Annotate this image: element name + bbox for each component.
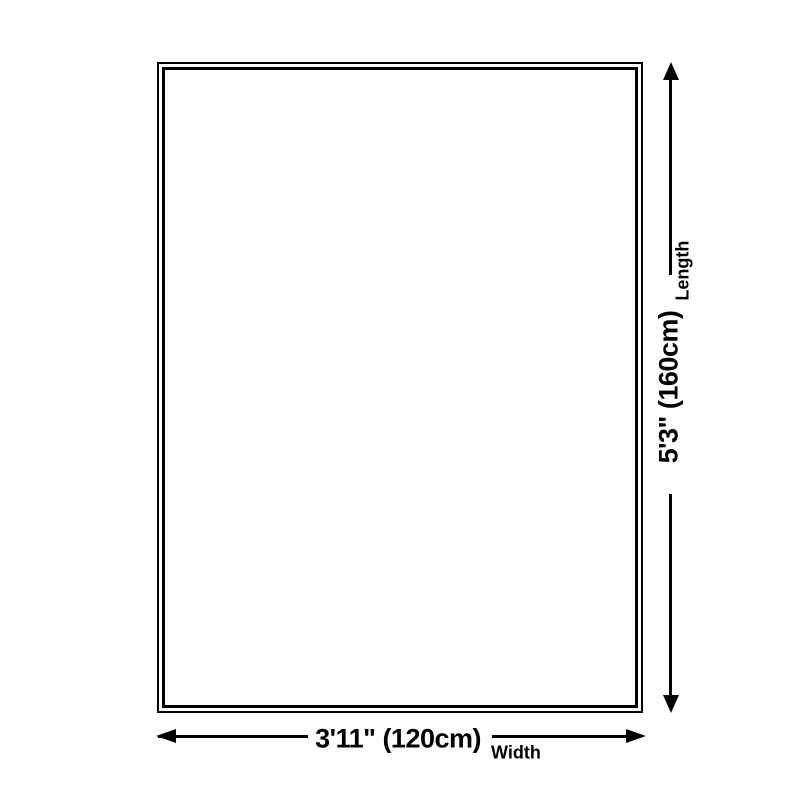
length-label: Length bbox=[672, 241, 693, 301]
product-outline-outer bbox=[157, 62, 643, 713]
width-arrow-line-left bbox=[158, 735, 308, 738]
rug-dimension-diagram: 5'3" (160cm) Length 3'11" (120cm) Width bbox=[0, 0, 800, 800]
width-label: Width bbox=[491, 742, 541, 763]
length-dimension-label: 5'3" (160cm) Length bbox=[653, 241, 684, 464]
width-arrow-right-icon bbox=[626, 729, 646, 743]
length-arrow-line-lower bbox=[669, 494, 672, 698]
length-arrow-down-icon bbox=[663, 695, 679, 713]
product-outline-inner bbox=[162, 67, 638, 708]
width-value: 3'11" (120cm) bbox=[315, 723, 481, 754]
length-value: 5'3" (160cm) bbox=[653, 311, 684, 464]
width-dimension-label: 3'11" (120cm) Width bbox=[315, 723, 541, 754]
